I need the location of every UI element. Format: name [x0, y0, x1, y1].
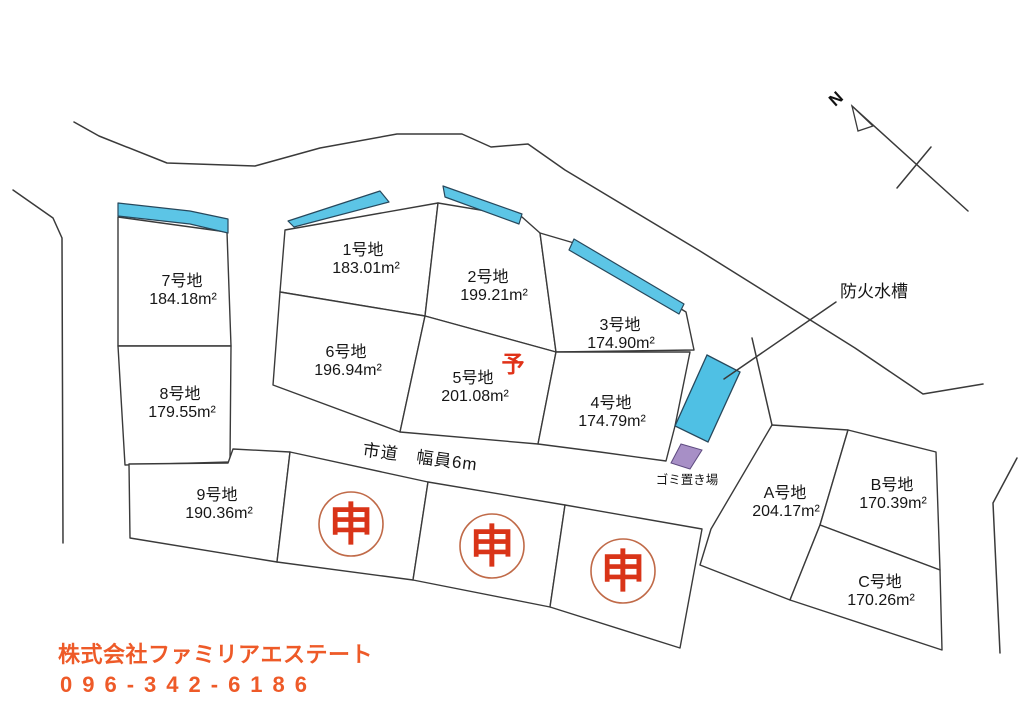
lot-A-label: A号地	[764, 484, 807, 502]
lot-8-label: 8号地	[160, 385, 201, 403]
lot-C-area: 170.26m²	[847, 592, 915, 609]
lot-C-label: C号地	[858, 573, 902, 591]
lot-2-area: 199.21m²	[460, 287, 528, 304]
outer-boundary-right	[993, 458, 1017, 653]
lot-6-area: 196.94m²	[314, 362, 382, 379]
lot-9-area: 190.36m²	[185, 505, 253, 522]
company-name: 株式会社ファミリアエステート	[58, 642, 373, 667]
lot-subdivision-map: 防火水槽 ゴミ置き場 1号地 183.01m² 2号地 199.21m² 3号地…	[0, 0, 1024, 724]
lot-4-label: 4号地	[591, 394, 632, 412]
road-label: 市道 幅員6m	[362, 441, 479, 475]
lot-8-area: 179.55m²	[148, 404, 216, 421]
reserved-mark-lot5: 予	[502, 351, 525, 377]
north-label: N	[825, 88, 847, 110]
north-arrow-head	[852, 106, 873, 131]
lot-2-label: 2号地	[468, 268, 509, 286]
applied-mark-text-1: 申	[328, 499, 373, 550]
fire-water-tank-label: 防火水槽	[840, 282, 908, 301]
lot-3-area: 174.90m²	[587, 335, 655, 352]
lot-B-area: 170.39m²	[859, 495, 927, 512]
lot-7-area: 184.18m²	[149, 291, 217, 308]
lot-9-label: 9号地	[197, 486, 238, 504]
lot-1-label: 1号地	[343, 241, 384, 259]
lot-5-area: 201.08m²	[441, 388, 509, 405]
lot-3-label: 3号地	[600, 316, 641, 334]
fire-water-tank-pointer-line	[724, 302, 836, 379]
garbage-area-shape	[671, 444, 702, 469]
lot-4-area: 174.79m²	[578, 413, 646, 430]
north-arrow: N	[825, 88, 968, 211]
company-phone: 096-342-6186	[60, 672, 317, 697]
lot-6-label: 6号地	[326, 343, 367, 361]
lot-5-label: 5号地	[453, 369, 494, 387]
north-arrow-crosstick	[897, 147, 931, 188]
applied-mark-text-2: 申	[469, 521, 514, 572]
lot-1-area: 183.01m²	[332, 260, 400, 277]
lot-A-area: 204.17m²	[752, 503, 820, 520]
road-edge-right-of-tank	[752, 338, 772, 425]
lot-B-label: B号地	[871, 476, 914, 494]
applied-mark-text-3: 申	[600, 546, 645, 597]
lot-7-label: 7号地	[162, 272, 203, 290]
garbage-area-label: ゴミ置き場	[656, 472, 719, 487]
site-plan-svg: 防火水槽 ゴミ置き場 1号地 183.01m² 2号地 199.21m² 3号地…	[0, 0, 1024, 724]
outer-boundary-left	[13, 190, 63, 543]
